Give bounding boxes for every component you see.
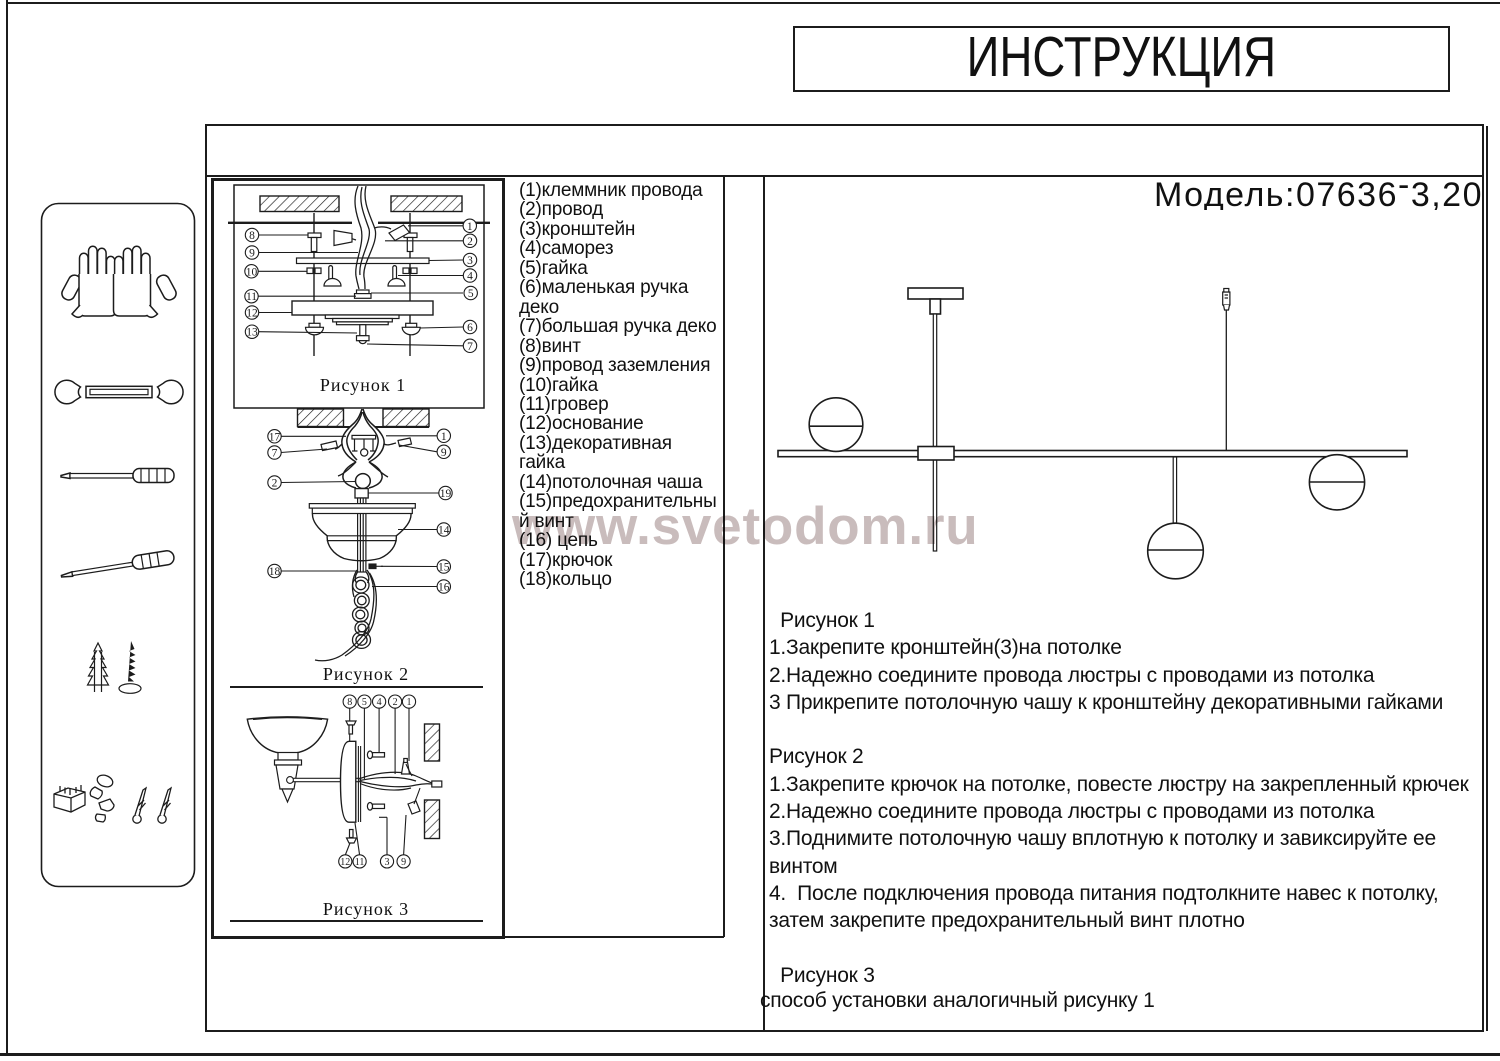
svg-text:6: 6 (467, 322, 473, 334)
svg-text:15: 15 (438, 562, 450, 574)
svg-text:9: 9 (249, 248, 255, 260)
svg-text:12: 12 (246, 308, 258, 320)
svg-text:2: 2 (272, 478, 278, 490)
svg-text:7: 7 (467, 341, 473, 353)
svg-text:11: 11 (246, 291, 257, 303)
svg-text:14: 14 (438, 525, 450, 537)
svg-text:2: 2 (467, 236, 473, 248)
svg-text:19: 19 (440, 488, 452, 500)
svg-text:8: 8 (347, 697, 352, 708)
svg-text:7: 7 (272, 448, 278, 460)
svg-text:13: 13 (246, 327, 258, 339)
svg-text:16: 16 (438, 582, 450, 594)
svg-text:1: 1 (441, 431, 447, 443)
svg-text:10: 10 (246, 266, 258, 278)
svg-text:1: 1 (467, 221, 473, 233)
svg-text:4: 4 (467, 271, 473, 283)
svg-text:3: 3 (385, 857, 390, 868)
svg-text:2: 2 (393, 697, 398, 708)
svg-text:4: 4 (377, 697, 382, 708)
svg-text:9: 9 (441, 447, 447, 459)
svg-text:3: 3 (467, 255, 473, 267)
svg-text:1: 1 (407, 697, 412, 708)
svg-text:5: 5 (362, 697, 367, 708)
svg-text:11: 11 (355, 857, 365, 868)
svg-text:8: 8 (249, 230, 255, 242)
svg-text:9: 9 (401, 857, 406, 868)
svg-text:18: 18 (269, 566, 281, 578)
svg-text:5: 5 (468, 288, 474, 300)
svg-text:17: 17 (269, 431, 281, 443)
svg-text:12: 12 (340, 857, 350, 868)
